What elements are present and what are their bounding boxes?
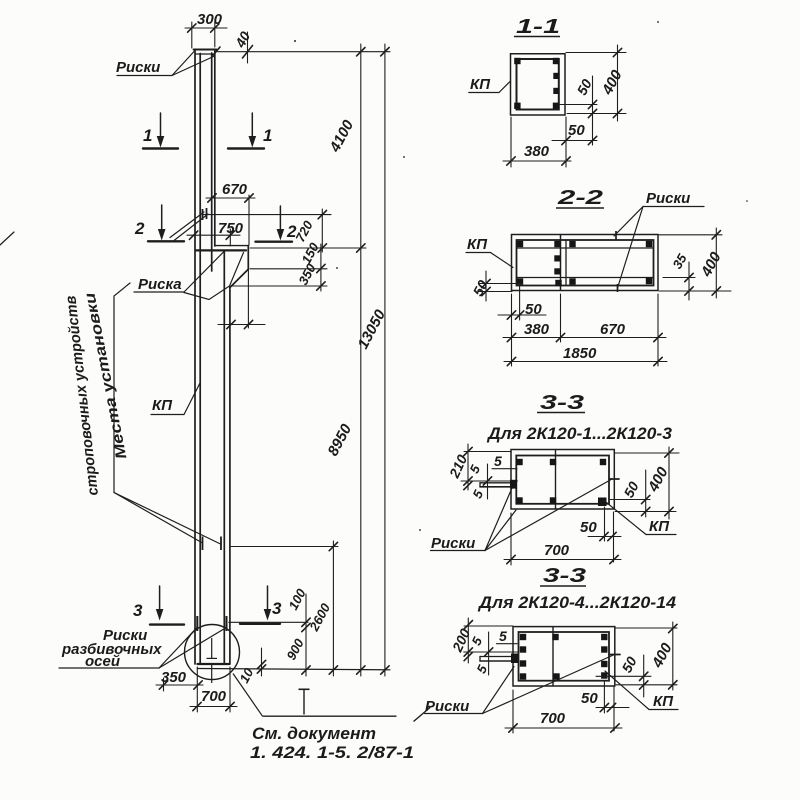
svg-text:5: 5 bbox=[499, 628, 507, 644]
svg-text:КП: КП bbox=[467, 236, 488, 253]
svg-text:3-3: 3-3 bbox=[543, 565, 586, 587]
svg-text:КП: КП bbox=[653, 693, 674, 710]
svg-text:1850: 1850 bbox=[563, 345, 597, 362]
svg-text:Для 2К120-1...2К120-3: Для 2К120-1...2К120-3 bbox=[486, 424, 673, 443]
svg-text:300: 300 bbox=[197, 11, 223, 28]
svg-text:2-2: 2-2 bbox=[556, 187, 603, 209]
svg-text:См. документ: См. документ bbox=[252, 724, 376, 743]
svg-text:Риски: Риски bbox=[646, 190, 690, 207]
svg-text:5: 5 bbox=[494, 453, 502, 469]
svg-text:Для 2К120-4...2К120-14: Для 2К120-4...2К120-14 bbox=[477, 593, 677, 612]
svg-text:700: 700 bbox=[540, 710, 566, 727]
svg-text:осей: осей bbox=[85, 653, 120, 670]
svg-text:700: 700 bbox=[201, 688, 227, 705]
svg-text:700: 700 bbox=[544, 542, 570, 559]
svg-text:50: 50 bbox=[568, 122, 585, 139]
svg-text:1: 1 bbox=[143, 126, 152, 145]
svg-text:Риски: Риски bbox=[116, 59, 160, 76]
svg-text:380: 380 bbox=[524, 321, 550, 338]
svg-text:Риска: Риска bbox=[138, 276, 182, 293]
svg-text:3: 3 bbox=[272, 599, 282, 618]
svg-text:КП: КП bbox=[152, 397, 173, 414]
svg-text:670: 670 bbox=[600, 321, 626, 338]
svg-text:1-1: 1-1 bbox=[516, 16, 560, 38]
svg-text:380: 380 bbox=[524, 143, 550, 160]
svg-text:Риски: Риски bbox=[431, 535, 475, 552]
svg-text:3-3: 3-3 bbox=[540, 392, 584, 414]
svg-text:670: 670 bbox=[222, 181, 248, 198]
svg-text:1. 424. 1-5. 2/87-1: 1. 424. 1-5. 2/87-1 bbox=[250, 743, 414, 762]
svg-text:350: 350 bbox=[161, 669, 187, 686]
svg-text:50: 50 bbox=[580, 519, 597, 536]
svg-text:Риски: Риски bbox=[425, 698, 469, 715]
svg-text:50: 50 bbox=[581, 690, 598, 707]
svg-text:3: 3 bbox=[133, 601, 143, 620]
svg-text:КП: КП bbox=[470, 76, 491, 93]
svg-text:750: 750 bbox=[218, 220, 244, 237]
svg-text:КП: КП bbox=[649, 518, 670, 535]
svg-text:2: 2 bbox=[134, 219, 145, 238]
svg-text:1: 1 bbox=[263, 126, 272, 145]
svg-text:50: 50 bbox=[525, 301, 542, 318]
